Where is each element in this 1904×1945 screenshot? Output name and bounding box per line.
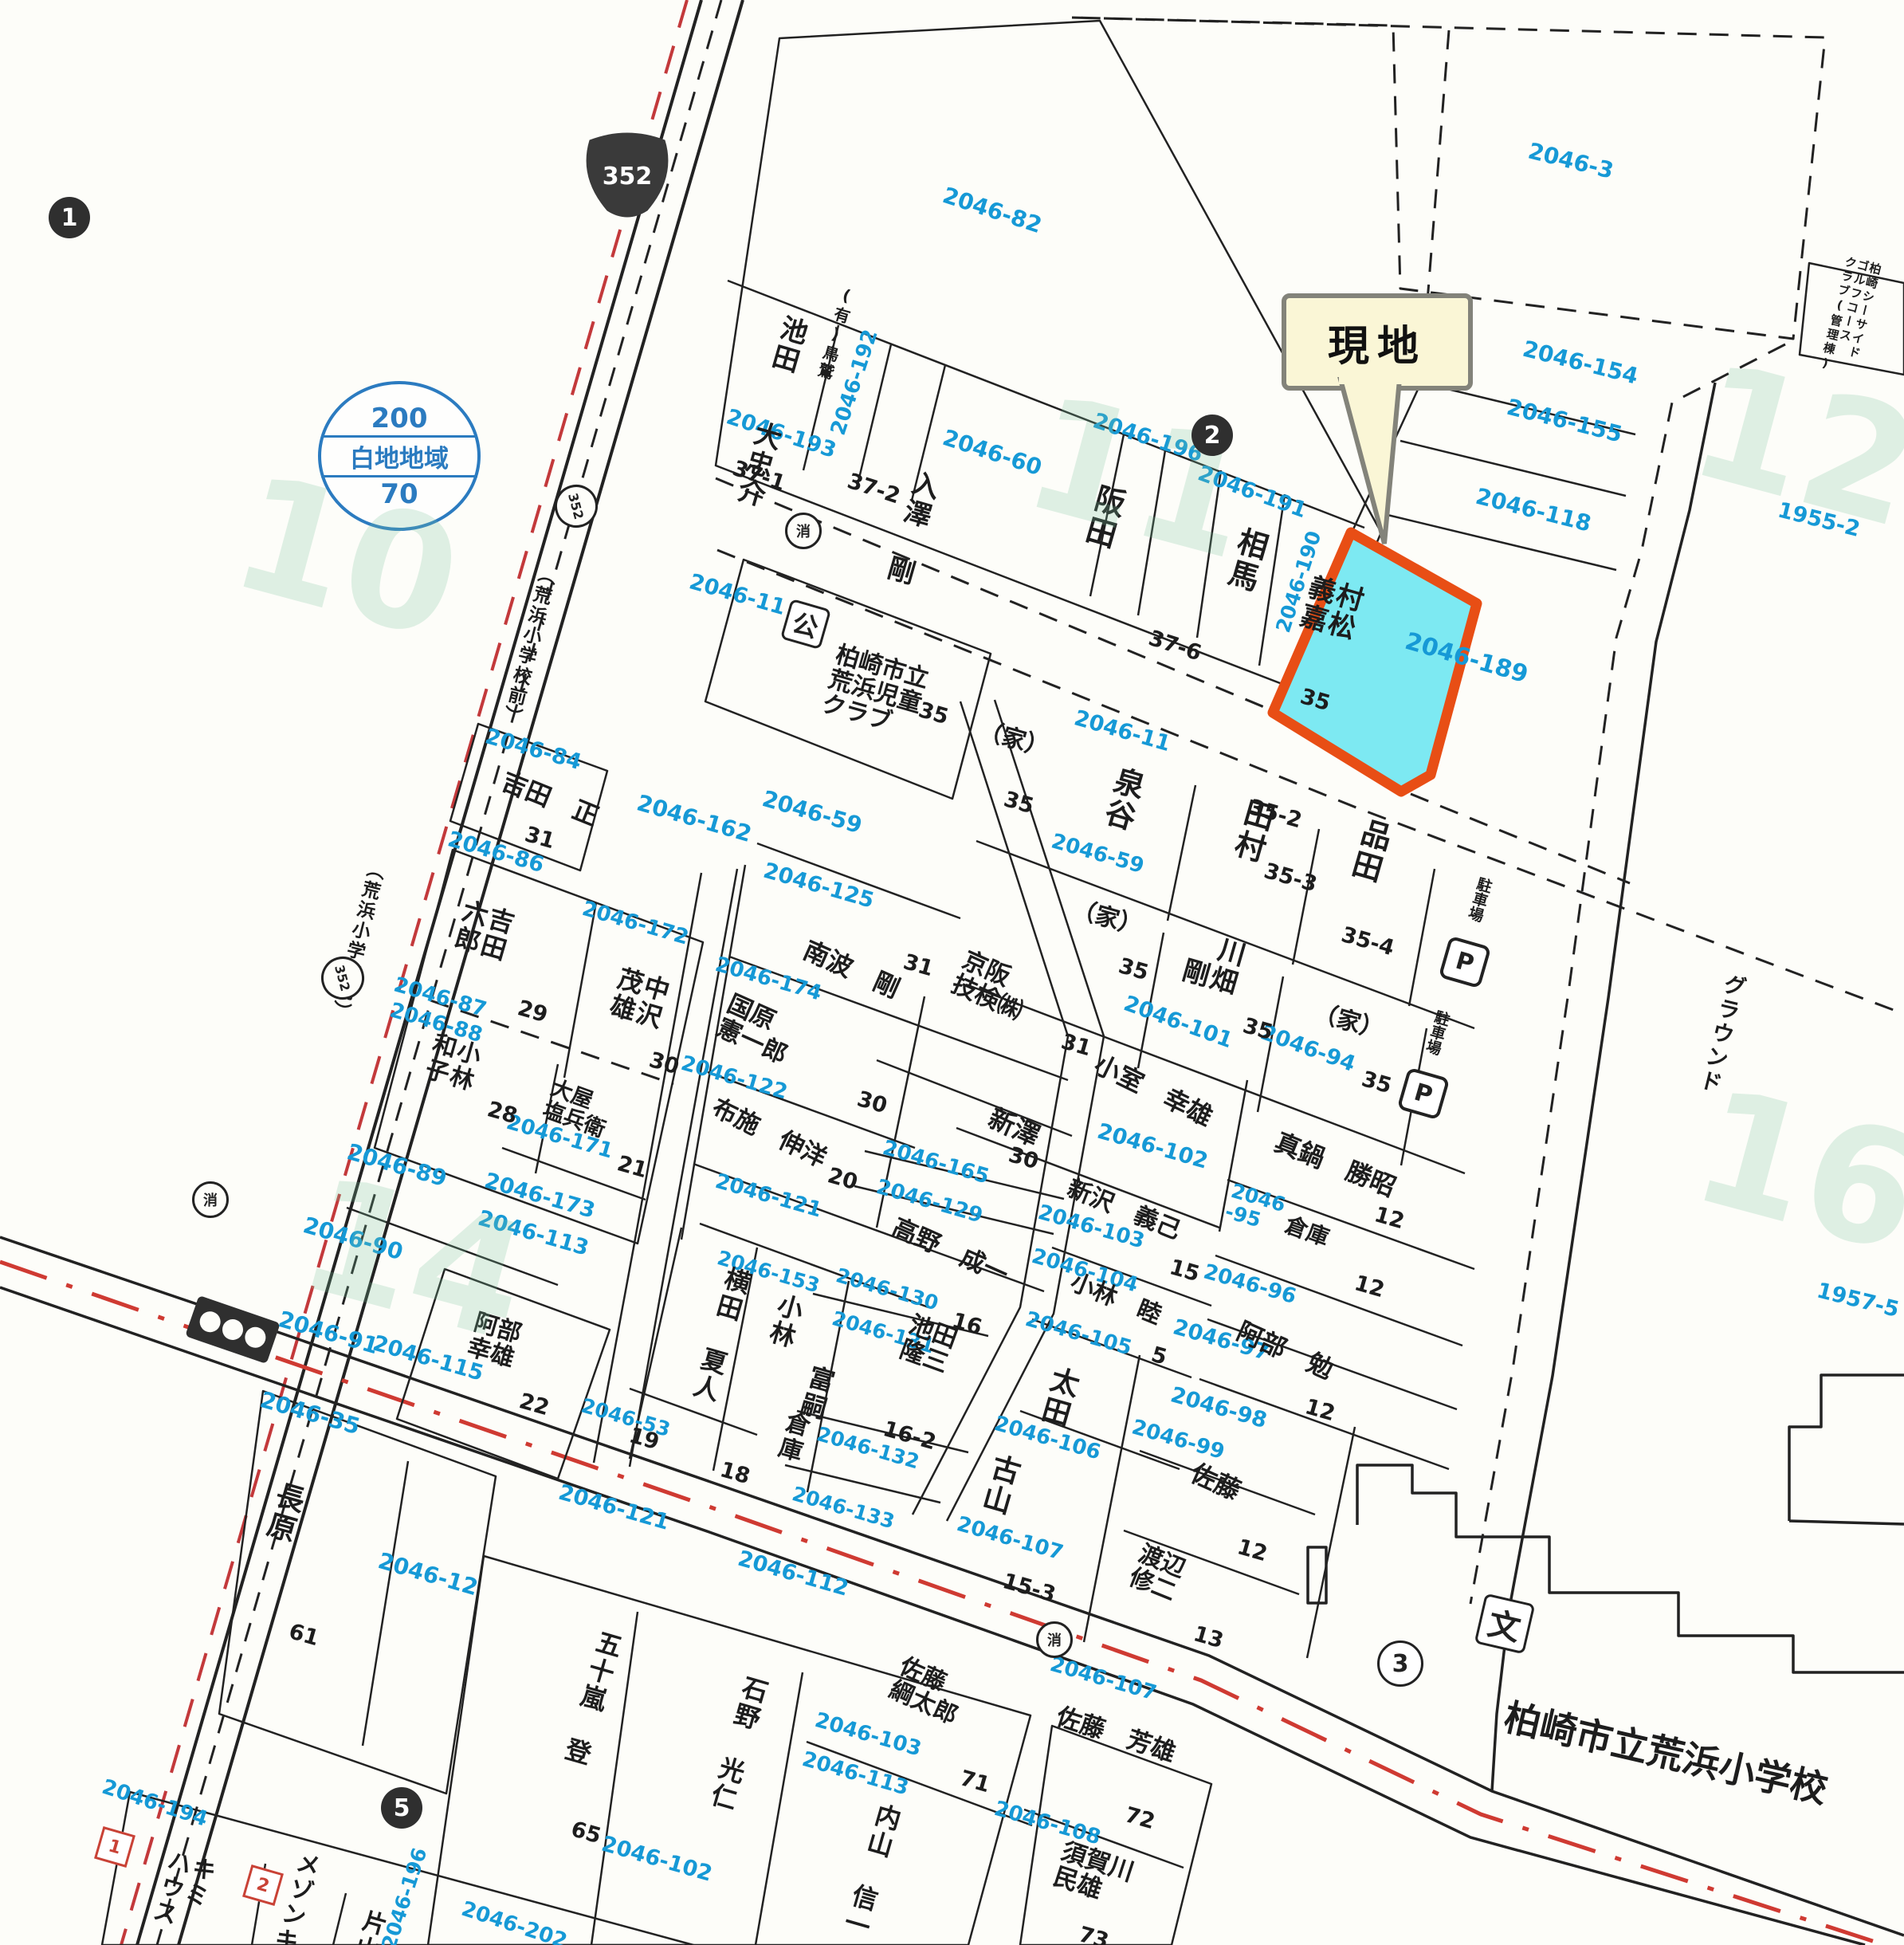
circled-number-1: 1 [49, 197, 90, 238]
circled-number-2: 2 [1191, 415, 1233, 456]
map-linework [0, 0, 1904, 1945]
school-outline [1308, 1375, 1904, 1672]
circled-number-5: 5 [381, 1787, 422, 1829]
east-road [1492, 383, 1715, 1791]
fire-hydrant-icon: 消 [1036, 1621, 1073, 1658]
route-shield-number: 352 [603, 164, 653, 190]
circled-number-3: 3 [1377, 1640, 1423, 1687]
fire-hydrant-icon: 消 [785, 513, 822, 549]
fire-hydrant-icon: 消 [192, 1181, 229, 1218]
traffic-signal-icon [185, 1295, 281, 1364]
genchi-callout-text: 現地 [1328, 312, 1427, 372]
cadastral-map: 352 200 白地地域 70 現地 文 公 柏崎市立 荒浜児童 クラブ 204… [0, 0, 1904, 1945]
genchi-callout-pointer [1307, 375, 1419, 550]
zoning-badge-top: 200 [367, 402, 433, 435]
